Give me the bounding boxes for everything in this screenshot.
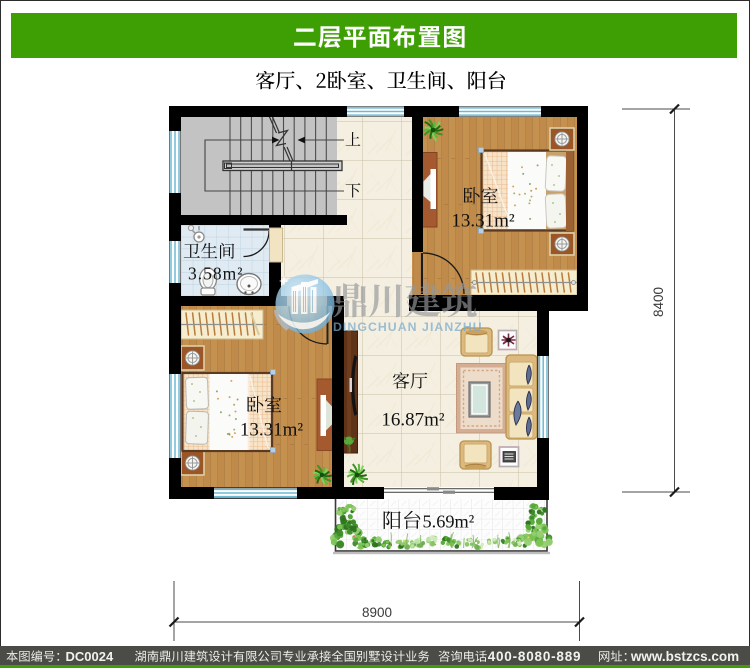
svg-text:DINGCHUAN JIANZHU: DINGCHUAN JIANZHU bbox=[333, 320, 483, 334]
svg-text:DC0024: DC0024 bbox=[66, 649, 114, 664]
svg-text:13.31m²: 13.31m² bbox=[240, 420, 304, 441]
svg-text:8900: 8900 bbox=[362, 605, 392, 620]
svg-text:400-8080-889: 400-8080-889 bbox=[488, 649, 582, 664]
svg-text:8400: 8400 bbox=[651, 287, 666, 317]
svg-text:3.58m²: 3.58m² bbox=[188, 264, 243, 284]
svg-text:www.bstzcs.com: www.bstzcs.com bbox=[630, 649, 739, 664]
svg-text:13.31m²: 13.31m² bbox=[451, 211, 515, 232]
svg-text:16.87m²: 16.87m² bbox=[381, 410, 445, 431]
svg-text:5.69m²: 5.69m² bbox=[423, 512, 475, 532]
